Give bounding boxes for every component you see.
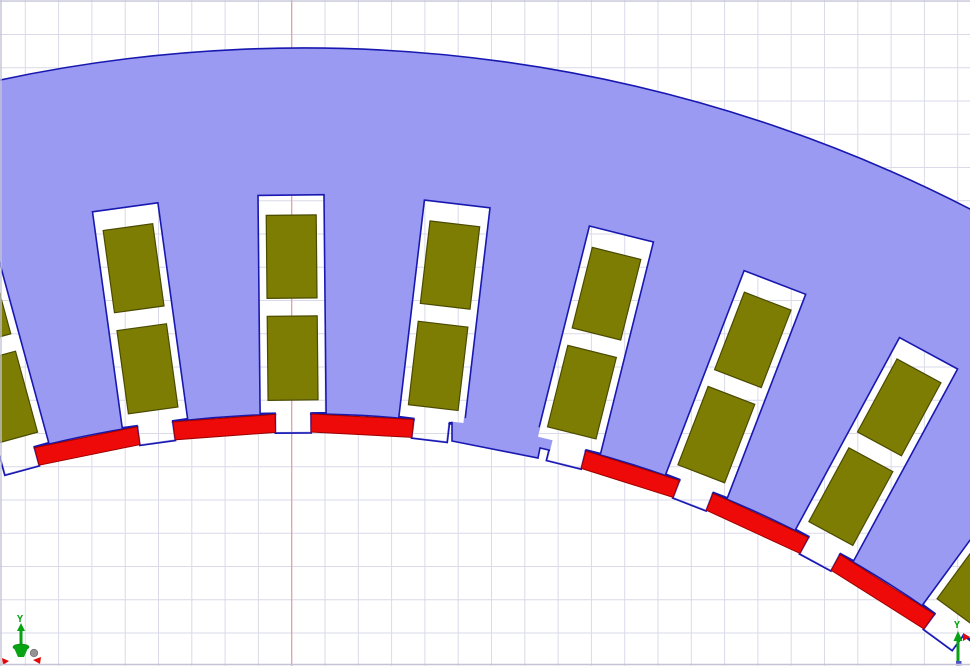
y-axis-label: Y bbox=[17, 614, 23, 625]
coil-1-lower[interactable] bbox=[117, 324, 178, 414]
coil-3-lower[interactable] bbox=[408, 321, 467, 410]
coil-1-upper[interactable] bbox=[103, 224, 164, 313]
cs-origin-sphere-icon bbox=[30, 649, 38, 657]
coil-2-upper[interactable] bbox=[266, 215, 317, 298]
coil-3-upper[interactable] bbox=[420, 221, 479, 309]
y-axis-shaft bbox=[957, 640, 960, 661]
y-axis-shaft bbox=[20, 630, 23, 646]
modeler-viewport[interactable]: YY bbox=[0, 0, 970, 666]
coil-2-lower[interactable] bbox=[267, 316, 318, 400]
y-axis-label: Y bbox=[954, 620, 960, 631]
geometry-canvas[interactable]: YY bbox=[0, 0, 970, 666]
